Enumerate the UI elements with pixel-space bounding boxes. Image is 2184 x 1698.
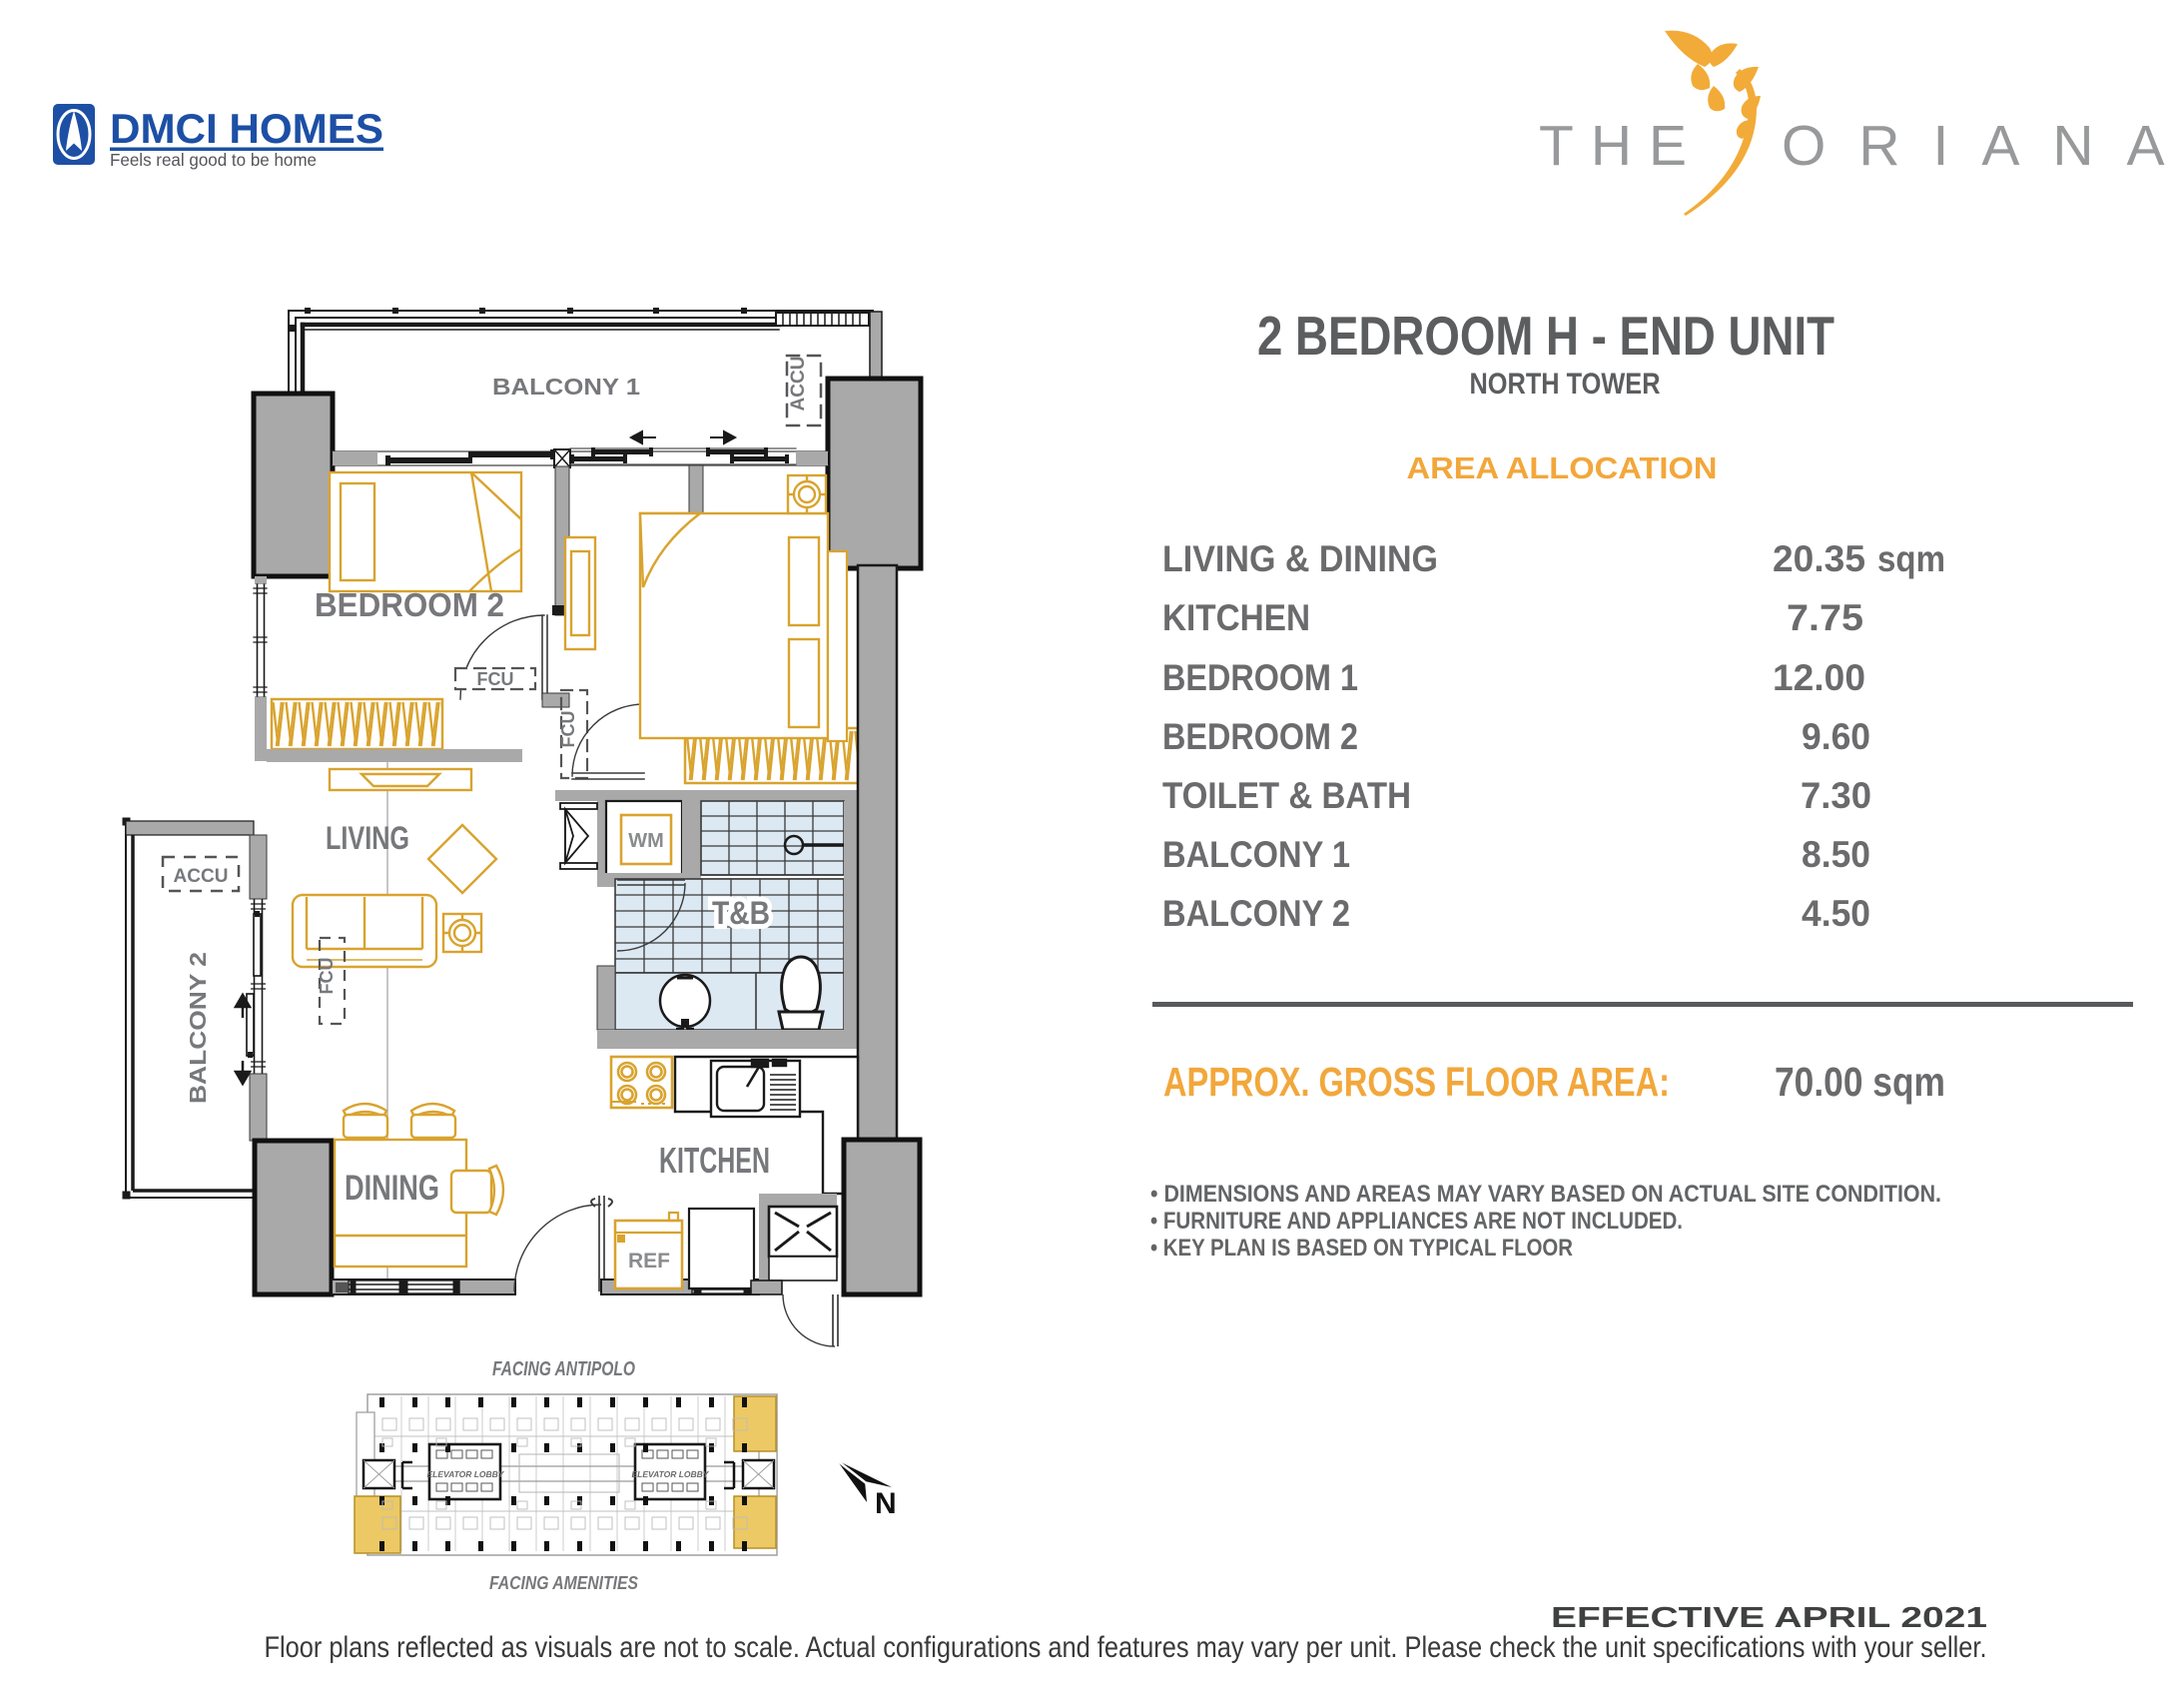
svg-text:FACING ANTIPOLO: FACING ANTIPOLO	[492, 1358, 635, 1380]
svg-text:N: N	[875, 1487, 897, 1520]
svg-text:REF: REF	[628, 1250, 670, 1273]
svg-text:FACING AMENITIES: FACING AMENITIES	[489, 1573, 638, 1593]
svg-text:ELEVATOR LOBBY: ELEVATOR LOBBY	[632, 1469, 710, 1479]
svg-text:ELEVATOR LOBBY: ELEVATOR LOBBY	[427, 1469, 505, 1479]
